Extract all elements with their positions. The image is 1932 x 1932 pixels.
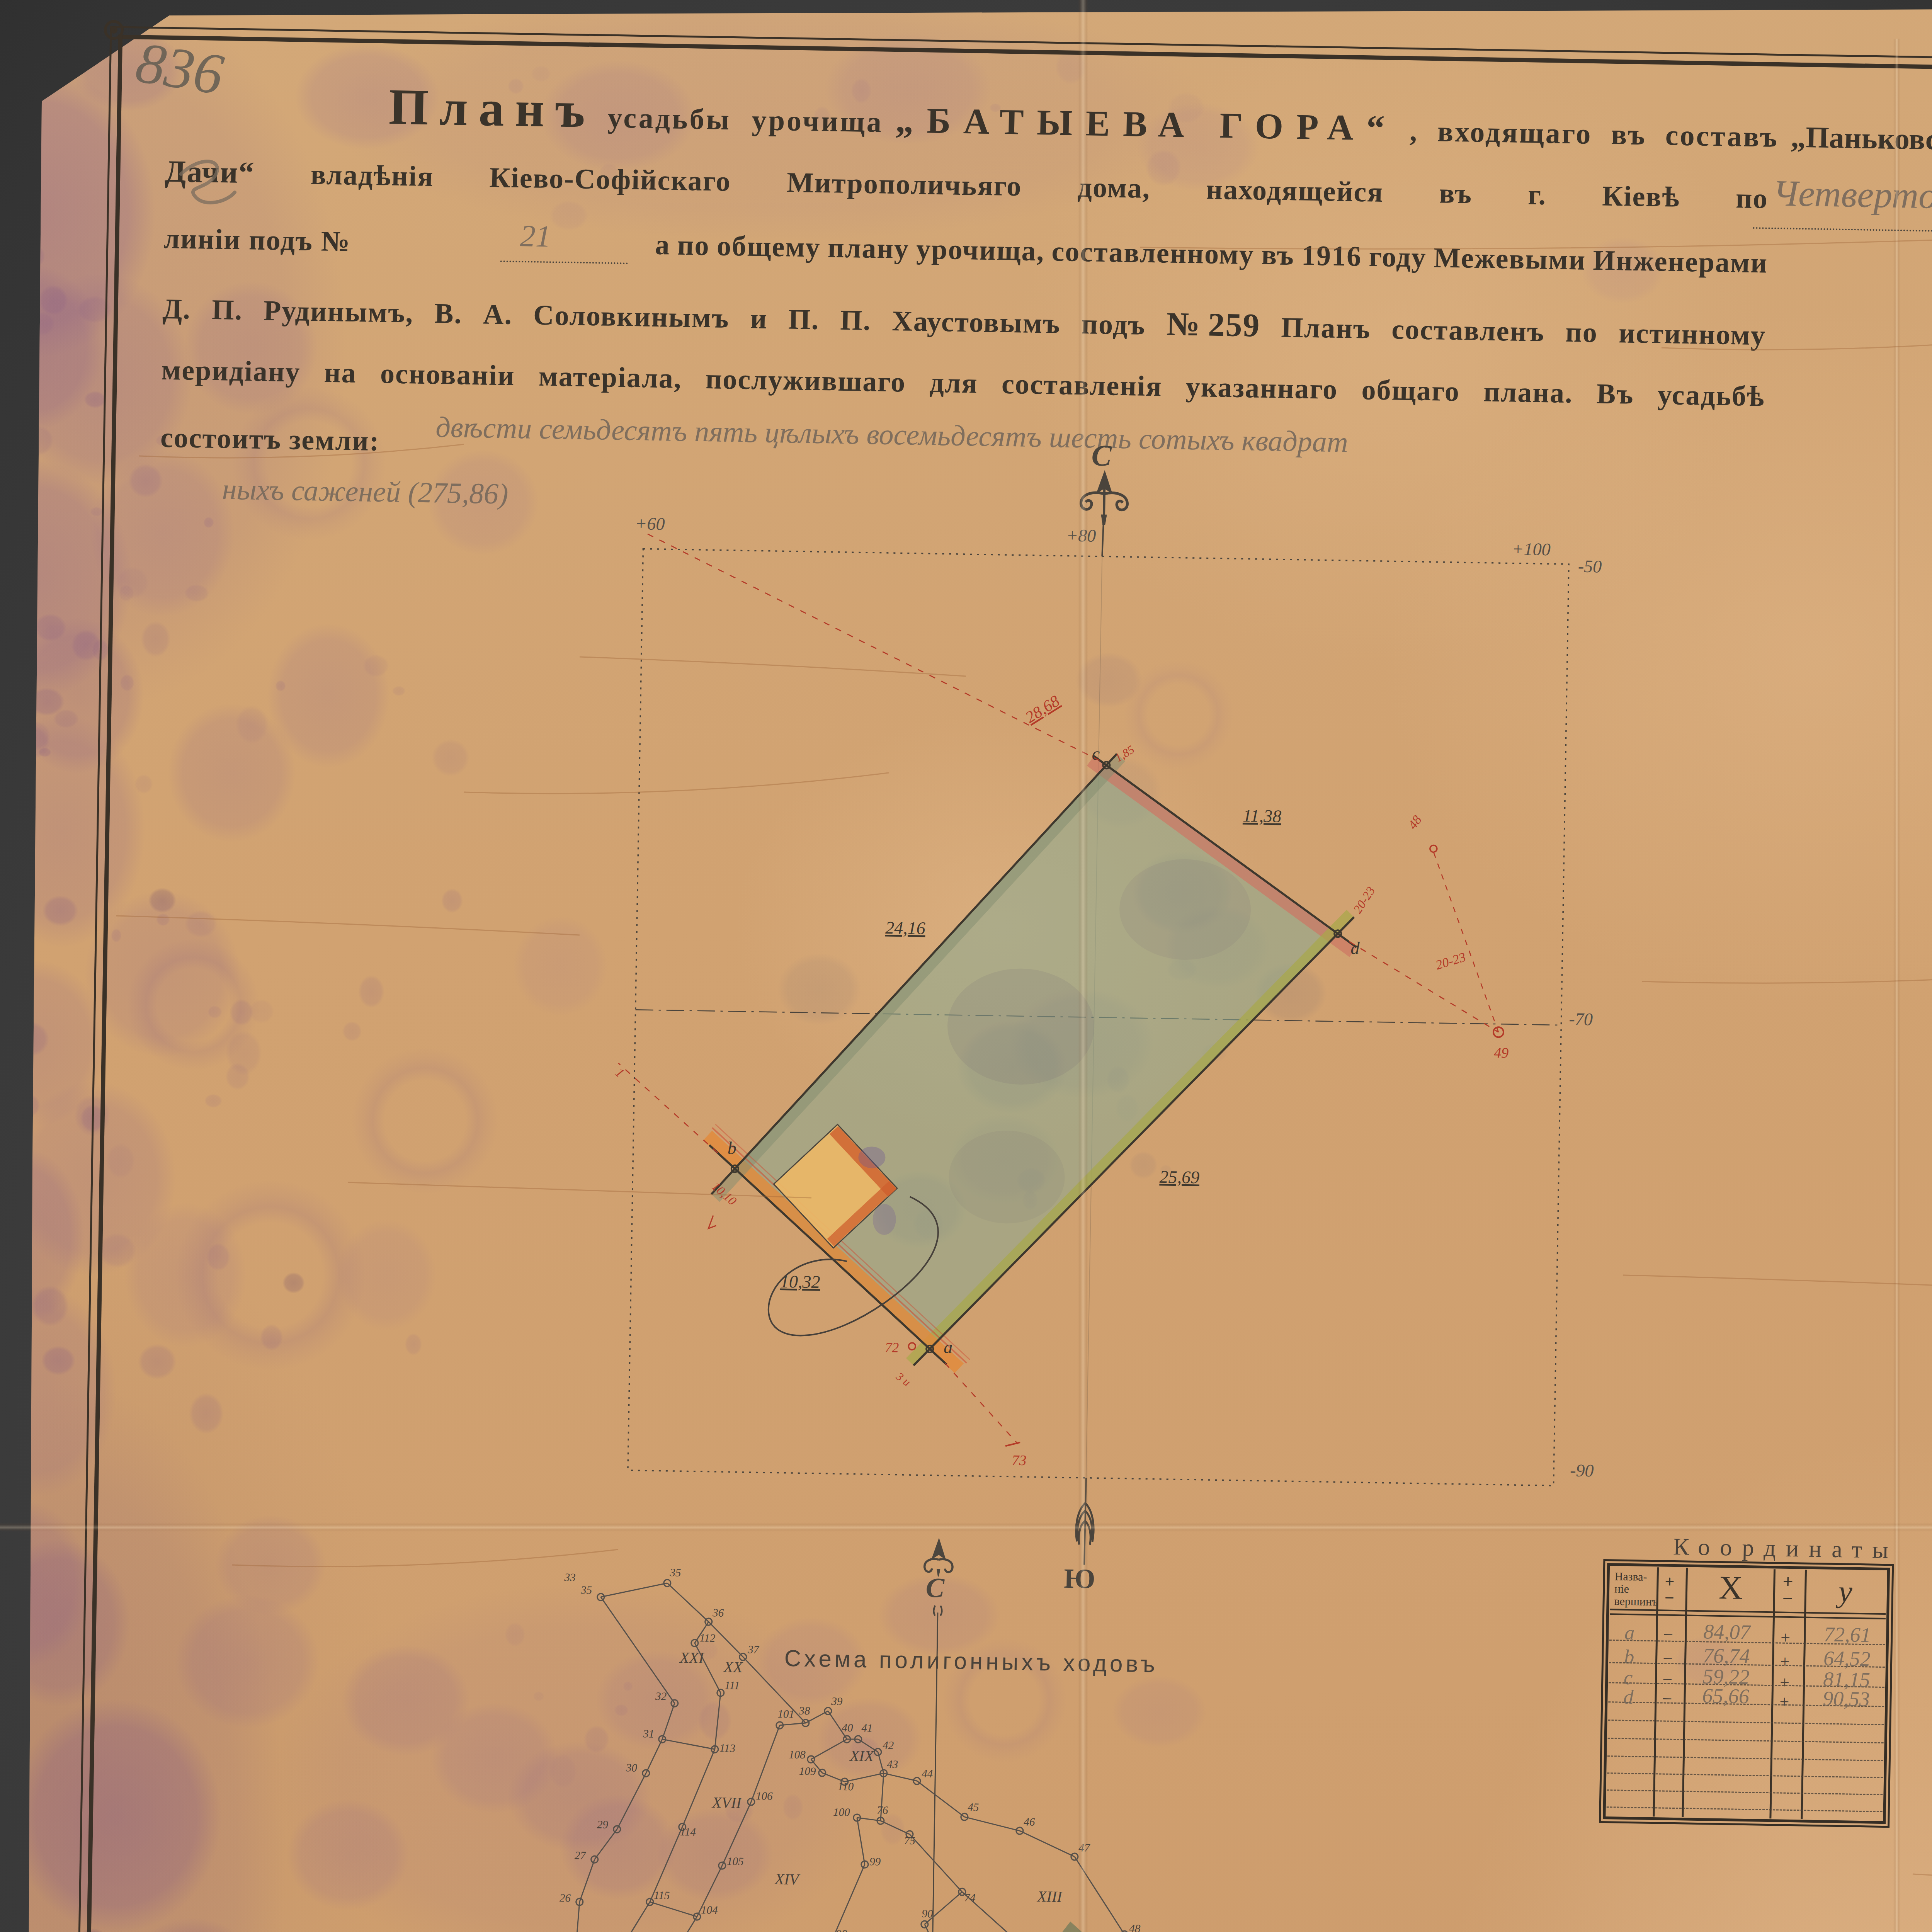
svg-text:32: 32 xyxy=(655,1690,667,1702)
svg-text:108: 108 xyxy=(789,1748,806,1761)
svg-text:b: b xyxy=(727,1138,736,1158)
svg-text:XIII: XIII xyxy=(1036,1888,1063,1905)
svg-text:44: 44 xyxy=(922,1767,933,1779)
svg-text:33: 33 xyxy=(564,1571,576,1583)
svg-text:104: 104 xyxy=(701,1903,718,1916)
svg-text:100: 100 xyxy=(833,1806,850,1818)
svg-text:71: 71 xyxy=(1017,1930,1029,1932)
svg-text:-70: -70 xyxy=(1569,1009,1593,1029)
svg-text:114: 114 xyxy=(680,1825,696,1838)
svg-text:XIX: XIX xyxy=(849,1747,874,1765)
svg-text:+60: +60 xyxy=(635,514,665,534)
svg-text:35: 35 xyxy=(580,1583,592,1596)
svg-text:48: 48 xyxy=(1129,1922,1141,1932)
svg-text:+80: +80 xyxy=(1066,526,1096,546)
svg-text:11,38: 11,38 xyxy=(1243,806,1282,826)
svg-text:74: 74 xyxy=(964,1891,976,1903)
svg-text:a: a xyxy=(944,1337,953,1357)
svg-text:3 и: 3 и xyxy=(894,1369,913,1388)
svg-text:36: 36 xyxy=(712,1606,724,1619)
svg-text:99: 99 xyxy=(869,1855,881,1867)
svg-text:43: 43 xyxy=(887,1758,898,1770)
svg-text:27: 27 xyxy=(575,1849,587,1862)
svg-text:42: 42 xyxy=(883,1739,894,1751)
svg-text:Схема полигонныхъ ходовъ: Схема полигонныхъ ходовъ xyxy=(784,1645,1158,1677)
svg-text:24,16: 24,16 xyxy=(885,918,925,938)
svg-text:105: 105 xyxy=(727,1855,744,1867)
svg-text:111: 111 xyxy=(724,1679,740,1692)
svg-text:d: d xyxy=(1350,938,1360,958)
svg-text:46: 46 xyxy=(1024,1815,1035,1828)
svg-text:XIV: XIV xyxy=(774,1870,801,1888)
svg-text:49: 49 xyxy=(1494,1044,1509,1061)
svg-text:41: 41 xyxy=(861,1721,873,1734)
svg-text:112: 112 xyxy=(699,1631,716,1644)
svg-text:С: С xyxy=(925,1572,945,1604)
svg-text:115: 115 xyxy=(654,1889,670,1901)
svg-text:-50: -50 xyxy=(1578,556,1602,576)
svg-text:72: 72 xyxy=(885,1340,899,1355)
svg-text:37: 37 xyxy=(747,1643,760,1656)
svg-text:48: 48 xyxy=(1405,813,1424,832)
svg-text:101: 101 xyxy=(777,1708,794,1720)
svg-text:-90: -90 xyxy=(1570,1460,1594,1480)
svg-text:30: 30 xyxy=(626,1761,638,1774)
svg-text:38: 38 xyxy=(798,1704,810,1717)
svg-text:С: С xyxy=(1091,439,1112,473)
svg-text:20-23: 20-23 xyxy=(1350,884,1378,916)
svg-text:40: 40 xyxy=(842,1721,853,1734)
svg-text:29: 29 xyxy=(597,1818,609,1830)
svg-text:109: 109 xyxy=(799,1765,816,1777)
svg-text:20-23: 20-23 xyxy=(1434,950,1468,973)
svg-text:39: 39 xyxy=(831,1695,843,1708)
svg-text:98: 98 xyxy=(836,1927,847,1932)
svg-text:+100: +100 xyxy=(1512,539,1551,560)
svg-text:90: 90 xyxy=(922,1907,933,1920)
svg-text:28,68: 28,68 xyxy=(1022,692,1063,726)
svg-text:31: 31 xyxy=(643,1727,655,1740)
svg-text:XX: XX xyxy=(723,1658,743,1676)
svg-text:25,69: 25,69 xyxy=(1159,1167,1199,1187)
svg-text:1: 1 xyxy=(612,1065,627,1080)
svg-text:45: 45 xyxy=(968,1801,979,1813)
svg-text:75: 75 xyxy=(904,1834,915,1847)
svg-text:XVII: XVII xyxy=(711,1794,742,1811)
svg-text:35: 35 xyxy=(669,1566,681,1578)
svg-text:106: 106 xyxy=(756,1789,773,1802)
svg-text:73: 73 xyxy=(1012,1452,1027,1469)
svg-text:76: 76 xyxy=(877,1804,888,1816)
svg-text:47: 47 xyxy=(1078,1841,1090,1854)
svg-text:26: 26 xyxy=(560,1891,571,1904)
svg-text:XXI: XXI xyxy=(679,1649,705,1667)
svg-text:113: 113 xyxy=(719,1742,736,1754)
svg-text:110: 110 xyxy=(837,1780,854,1793)
